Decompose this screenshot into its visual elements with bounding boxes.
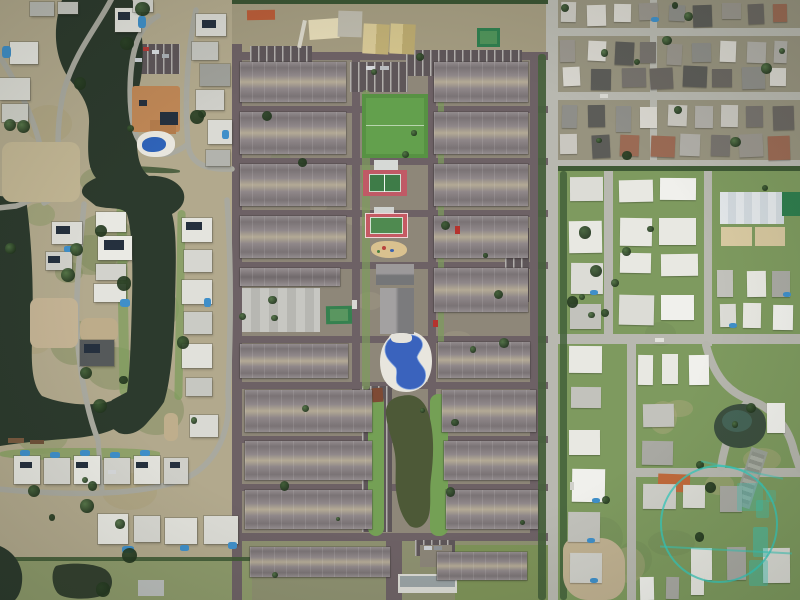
- road: [558, 28, 800, 36]
- tree: [119, 376, 127, 384]
- tree: [602, 496, 610, 504]
- tree: [17, 120, 30, 133]
- watermark-shape: [737, 483, 763, 511]
- watermark-shape: [749, 560, 768, 586]
- house: [721, 104, 738, 127]
- tree: [93, 399, 107, 413]
- solar-panel: [139, 100, 147, 106]
- tree: [499, 338, 509, 348]
- solar-panel: [56, 226, 70, 234]
- house: [747, 3, 764, 24]
- solar-panel: [170, 462, 180, 468]
- house: [570, 304, 601, 329]
- townhouse-block: [438, 342, 530, 378]
- townhouse-block: [434, 62, 528, 102]
- facility: [247, 10, 275, 20]
- facility: [30, 440, 44, 444]
- road: [558, 92, 800, 100]
- villa: [196, 90, 224, 110]
- solar-panel: [76, 462, 88, 468]
- facility: [391, 333, 412, 343]
- tree: [746, 403, 756, 413]
- tree: [411, 130, 417, 136]
- house: [689, 355, 709, 385]
- house: [693, 5, 713, 27]
- house: [562, 66, 580, 86]
- solar-panel: [136, 462, 148, 468]
- house: [616, 106, 631, 132]
- house: [572, 469, 605, 502]
- facility: [366, 125, 424, 126]
- tree: [4, 119, 16, 131]
- house: [695, 106, 713, 129]
- house: [619, 294, 655, 325]
- car: [162, 54, 169, 58]
- house: [747, 271, 766, 297]
- house: [739, 133, 764, 157]
- house: [660, 178, 696, 200]
- facility: [376, 264, 414, 285]
- parking-lot: [250, 46, 312, 62]
- villa: [200, 64, 230, 86]
- house: [568, 512, 600, 542]
- house: [640, 577, 655, 600]
- tree: [122, 548, 137, 563]
- court-inner: [370, 217, 403, 234]
- solar-panel: [118, 12, 130, 20]
- villa: [134, 516, 160, 542]
- tree: [5, 243, 16, 254]
- house: [643, 404, 675, 428]
- townhouse-block: [245, 390, 372, 432]
- car: [143, 47, 149, 51]
- facility: [380, 288, 414, 334]
- tree: [672, 2, 679, 9]
- villa: [44, 458, 70, 484]
- zone-background: [0, 560, 252, 600]
- tree: [190, 110, 204, 124]
- house: [661, 254, 698, 277]
- villa: [206, 150, 230, 166]
- tree: [730, 137, 740, 147]
- facility: [242, 288, 320, 332]
- swimming-pool: [592, 498, 600, 503]
- house: [722, 3, 741, 19]
- car: [152, 50, 159, 54]
- swimming-pool: [140, 450, 150, 456]
- swimming-pool: [138, 16, 146, 28]
- house: [587, 5, 606, 27]
- house: [615, 42, 635, 66]
- car: [380, 66, 389, 70]
- swimming-pool: [50, 452, 60, 458]
- car: [424, 546, 432, 550]
- house: [710, 135, 730, 157]
- villa: [98, 514, 128, 544]
- facility: [30, 298, 78, 348]
- house: [571, 387, 602, 408]
- tree: [95, 225, 107, 237]
- tree: [120, 37, 133, 50]
- tree: [302, 405, 309, 412]
- tree: [96, 582, 110, 596]
- road: [704, 170, 712, 346]
- tree: [520, 520, 525, 525]
- tree: [88, 481, 97, 490]
- car: [455, 226, 460, 234]
- house: [570, 177, 603, 201]
- tree: [262, 111, 272, 121]
- tree: [588, 312, 594, 318]
- house: [622, 68, 646, 87]
- solar-panel: [202, 20, 216, 28]
- house: [666, 577, 679, 600]
- hedge: [560, 171, 567, 600]
- townhouse-block: [434, 112, 528, 154]
- villa: [165, 518, 197, 544]
- solar-panel: [186, 222, 202, 230]
- house: [720, 40, 736, 62]
- tree: [596, 138, 602, 144]
- tree: [49, 514, 55, 520]
- facility: [390, 249, 394, 252]
- tree: [732, 421, 738, 427]
- ground-patch: [145, 290, 179, 329]
- tree: [684, 12, 693, 21]
- tree: [761, 63, 772, 74]
- hedge: [558, 166, 800, 171]
- house: [768, 135, 791, 160]
- house: [560, 40, 575, 62]
- tree: [298, 158, 307, 167]
- swimming-pool: [110, 452, 120, 458]
- car: [135, 58, 142, 62]
- tree: [117, 276, 132, 291]
- villa: [10, 42, 38, 64]
- house: [746, 106, 763, 127]
- house: [649, 68, 673, 90]
- house: [769, 68, 785, 86]
- house: [591, 69, 611, 91]
- swimming-pool: [2, 46, 11, 58]
- townhouse-block: [250, 547, 390, 577]
- tree: [280, 481, 290, 491]
- car: [352, 300, 357, 309]
- house: [712, 69, 732, 87]
- facility: [362, 23, 390, 54]
- villa: [30, 2, 54, 16]
- tree: [115, 519, 124, 528]
- villa: [192, 42, 218, 60]
- ground-patch: [25, 105, 72, 144]
- tree: [674, 106, 682, 114]
- swimming-pool: [20, 450, 30, 456]
- solar-panel: [104, 240, 124, 250]
- facility: [142, 137, 166, 152]
- car: [600, 94, 608, 98]
- townhouse-block: [434, 268, 528, 312]
- road: [604, 170, 613, 344]
- house: [569, 346, 603, 373]
- tree: [82, 477, 88, 483]
- house: [640, 107, 657, 128]
- tree: [483, 253, 488, 258]
- house: [743, 302, 761, 327]
- townhouse-block: [245, 441, 372, 480]
- swimming-pool: [590, 578, 598, 583]
- house: [662, 354, 678, 384]
- swimming-pool: [222, 130, 229, 139]
- facility: [755, 227, 785, 246]
- facility: [372, 388, 384, 403]
- road: [558, 334, 800, 344]
- swimming-pool: [651, 17, 659, 22]
- house: [772, 106, 793, 130]
- car: [433, 320, 438, 327]
- car: [108, 470, 116, 474]
- villa: [58, 2, 78, 14]
- villa: [134, 456, 160, 484]
- tree: [420, 408, 425, 413]
- townhouse-block: [240, 268, 340, 286]
- court-inner: [369, 174, 401, 192]
- house: [773, 4, 787, 22]
- villa: [184, 250, 212, 272]
- tree: [135, 2, 150, 17]
- car: [434, 546, 442, 550]
- townhouse-block: [240, 112, 346, 154]
- house: [561, 105, 577, 128]
- house: [588, 104, 605, 127]
- solar-panel: [20, 462, 32, 468]
- facility: [721, 227, 752, 246]
- road: [546, 0, 558, 600]
- house: [640, 42, 656, 63]
- court-inner: [384, 174, 385, 192]
- facility: [8, 438, 24, 443]
- aerial-photo: [0, 0, 800, 600]
- townhouse-block: [444, 441, 538, 480]
- watermark-shape: [766, 490, 776, 502]
- villa: [14, 456, 40, 484]
- facility: [480, 31, 497, 44]
- hedge: [538, 54, 546, 600]
- tree: [239, 313, 246, 320]
- facility: [338, 11, 363, 38]
- facility: [308, 18, 339, 40]
- house: [642, 440, 674, 464]
- villa: [204, 516, 238, 544]
- townhouse-block: [240, 216, 346, 258]
- villa: [184, 312, 212, 334]
- tree: [446, 487, 455, 496]
- tree: [451, 419, 459, 427]
- house: [682, 66, 706, 88]
- facility: [366, 98, 424, 154]
- villa: [186, 378, 212, 396]
- swimming-pool: [80, 450, 90, 456]
- house: [569, 430, 600, 455]
- swimming-pool: [228, 542, 237, 549]
- house: [619, 179, 654, 202]
- house: [638, 354, 653, 384]
- ground-patch: [25, 203, 55, 225]
- solar-panel: [48, 256, 60, 263]
- hedge: [232, 0, 548, 4]
- parking-lot: [350, 62, 408, 92]
- solar-panel: [160, 112, 178, 125]
- tree: [647, 226, 654, 233]
- tree: [271, 315, 277, 321]
- townhouse-block: [434, 164, 528, 206]
- car: [570, 482, 574, 490]
- villa: [0, 78, 30, 100]
- facility: [720, 192, 784, 224]
- townhouse-block: [240, 62, 346, 102]
- solar-panel: [84, 344, 100, 353]
- townhouse-block: [240, 164, 346, 206]
- car: [655, 338, 664, 342]
- facility: [377, 250, 380, 253]
- facility: [382, 246, 386, 250]
- tree: [567, 296, 579, 308]
- swimming-pool: [180, 545, 189, 551]
- house: [620, 218, 652, 247]
- house: [747, 42, 767, 64]
- house: [679, 134, 700, 156]
- facility: [389, 23, 416, 54]
- house: [717, 270, 733, 297]
- house: [692, 43, 711, 62]
- road: [232, 533, 548, 541]
- townhouse-block: [437, 552, 527, 580]
- house: [614, 4, 632, 22]
- facility: [330, 309, 348, 321]
- tree: [622, 247, 631, 256]
- townhouse-block: [245, 490, 372, 529]
- tree: [191, 417, 197, 423]
- tree: [416, 53, 424, 61]
- swimming-pool: [729, 323, 737, 328]
- facility: [164, 413, 178, 441]
- swimming-pool: [590, 290, 598, 295]
- facility: [2, 142, 80, 202]
- tree: [601, 309, 609, 317]
- swimming-pool: [120, 299, 130, 307]
- tree: [601, 49, 609, 57]
- house: [773, 305, 793, 330]
- house: [767, 403, 786, 433]
- tree: [80, 499, 94, 513]
- tree: [622, 151, 631, 160]
- house: [650, 136, 675, 158]
- house: [619, 253, 651, 273]
- house: [560, 134, 577, 154]
- house: [570, 552, 602, 582]
- facility: [138, 580, 164, 596]
- house: [661, 295, 694, 320]
- facility: [80, 318, 118, 342]
- swimming-pool: [587, 538, 595, 543]
- house: [659, 218, 696, 245]
- townhouse-block: [240, 344, 348, 378]
- tree: [177, 336, 190, 349]
- house: [667, 43, 682, 64]
- swimming-pool: [204, 298, 211, 307]
- facility: [782, 192, 800, 216]
